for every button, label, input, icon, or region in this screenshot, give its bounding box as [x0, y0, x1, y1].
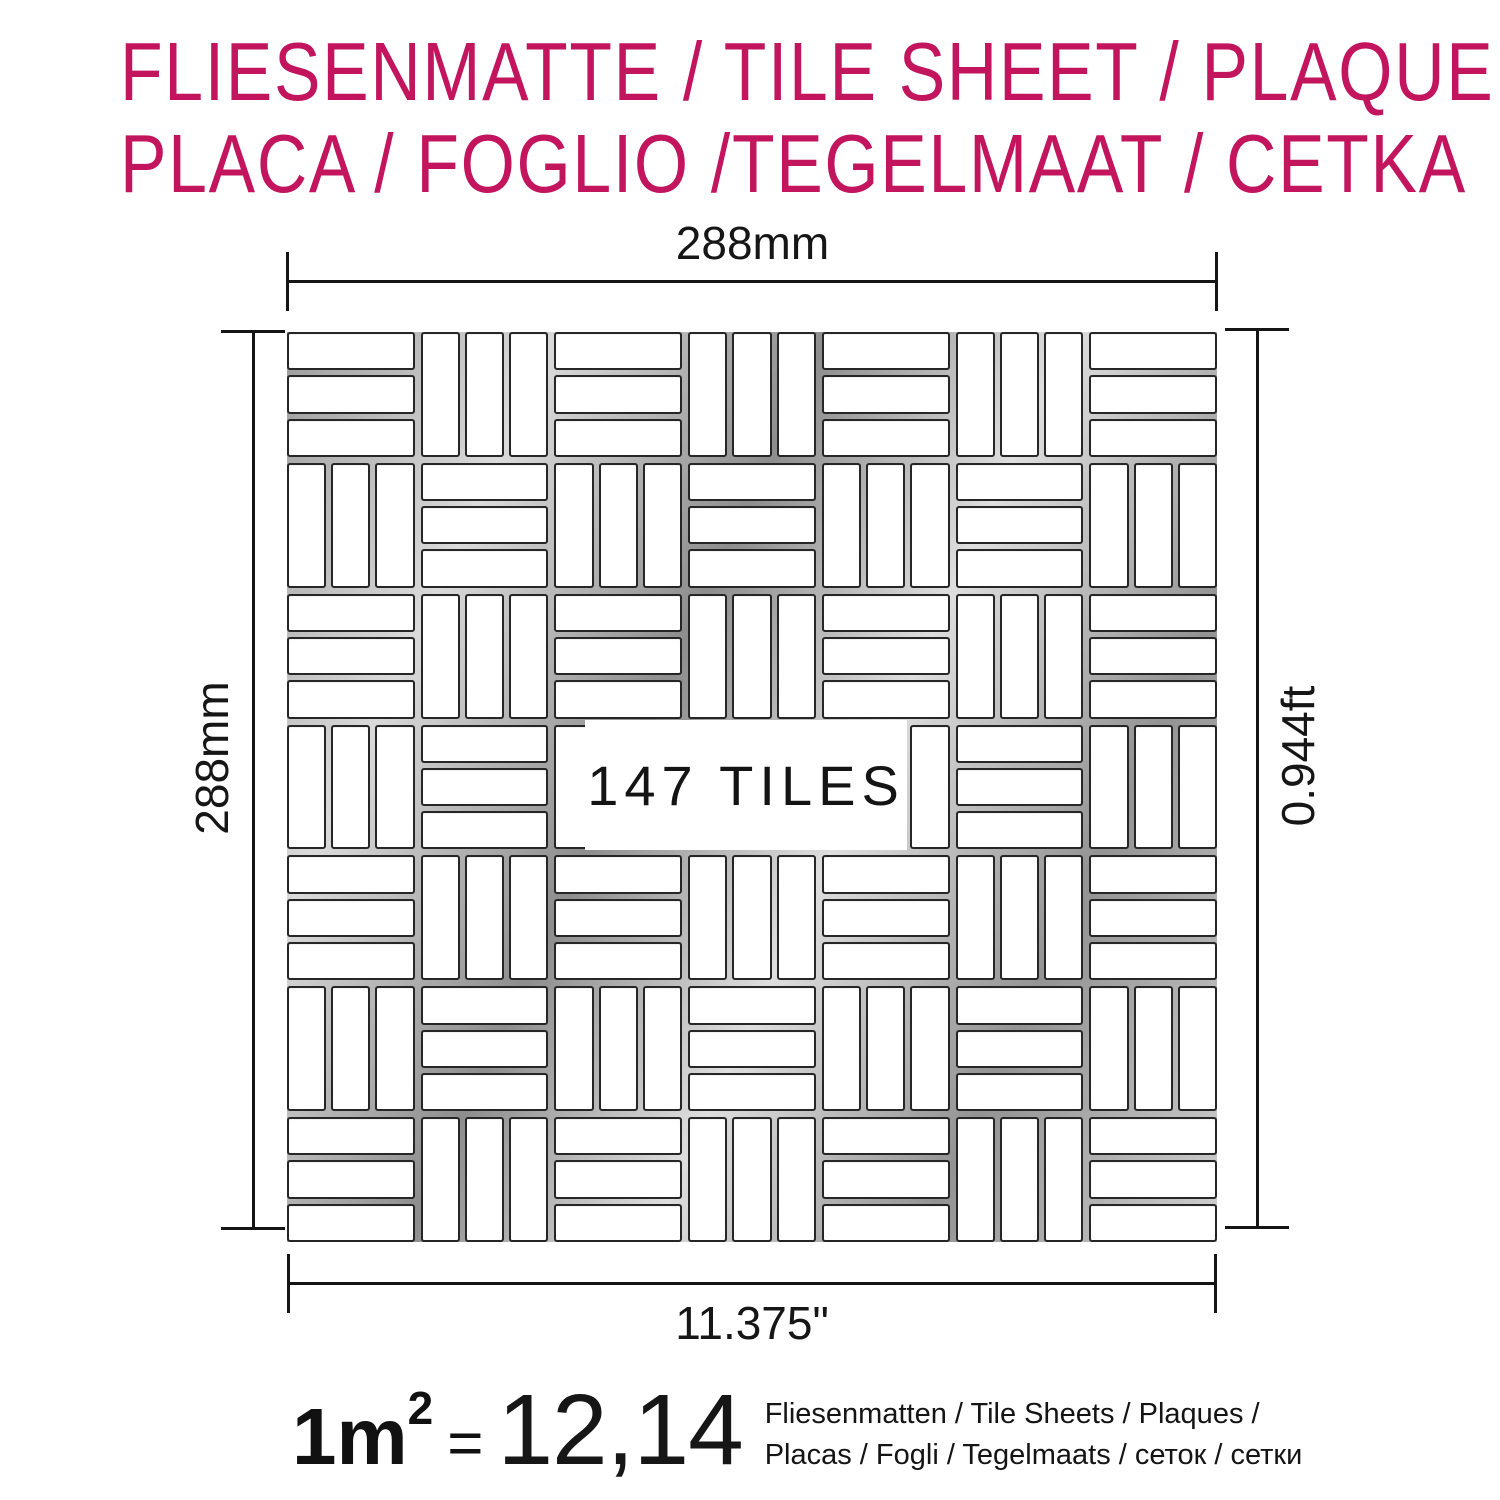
- tile: [777, 1117, 816, 1242]
- tile-block-vertical: [287, 725, 415, 850]
- tile: [1089, 419, 1217, 457]
- tile: [866, 986, 905, 1111]
- dim-bottom-label: 11.375": [288, 1296, 1216, 1350]
- tile: [554, 463, 593, 588]
- tile-block-horizontal: [421, 725, 549, 850]
- tile: [599, 463, 638, 588]
- tile: [910, 725, 949, 850]
- tile: [465, 332, 504, 457]
- tile: [554, 637, 682, 675]
- tile: [688, 986, 816, 1024]
- tile: [1134, 725, 1173, 850]
- tile: [331, 986, 370, 1111]
- equals-sign: =: [433, 1409, 497, 1478]
- tile: [910, 986, 949, 1111]
- dim-top-line: [287, 280, 1218, 283]
- tile: [331, 463, 370, 588]
- tile: [956, 986, 1084, 1024]
- tile: [287, 637, 415, 675]
- tile-block-horizontal: [822, 855, 950, 980]
- tile: [956, 768, 1084, 806]
- dim-top-tick-left: [286, 252, 289, 311]
- tile-block-horizontal: [287, 1117, 415, 1242]
- tile: [554, 594, 682, 632]
- tile-block-vertical: [956, 855, 1084, 980]
- tile: [688, 1030, 816, 1068]
- tile: [1089, 637, 1217, 675]
- tile-block-vertical: [1089, 986, 1217, 1111]
- title-line-2: PLACA / FOGLIO /TEGELMAAT / CETKA: [120, 118, 1380, 210]
- tile-block-horizontal: [554, 855, 682, 980]
- tile: [554, 332, 682, 370]
- tile: [421, 1030, 549, 1068]
- tile: [421, 986, 549, 1024]
- tile: [956, 463, 1084, 501]
- tile-block-vertical: [956, 1117, 1084, 1242]
- tile-block-vertical: [421, 855, 549, 980]
- tile: [822, 463, 861, 588]
- tile: [910, 463, 949, 588]
- tile: [956, 1073, 1084, 1111]
- tile: [822, 594, 950, 632]
- tile-block-horizontal: [421, 463, 549, 588]
- tile: [643, 986, 682, 1111]
- dim-left-tick-bottom: [221, 1227, 285, 1230]
- tile: [287, 855, 415, 893]
- tile: [554, 680, 682, 718]
- tile: [1134, 463, 1173, 588]
- tile: [554, 942, 682, 980]
- tile: [287, 375, 415, 413]
- tile: [1089, 942, 1217, 980]
- quantity-exponent: 2: [408, 1382, 434, 1434]
- tile-block-horizontal: [1089, 1117, 1217, 1242]
- tile: [287, 419, 415, 457]
- coverage-formula: 1m2=12,14Fliesenmatten / Tile Sheets / P…: [292, 1380, 1302, 1480]
- tile: [1089, 594, 1217, 632]
- tile: [1000, 855, 1039, 980]
- tile: [866, 463, 905, 588]
- tile: [822, 942, 950, 980]
- tile: [822, 855, 950, 893]
- tile: [732, 855, 771, 980]
- tile-block-horizontal: [554, 332, 682, 457]
- tile: [331, 725, 370, 850]
- tile: [688, 1117, 727, 1242]
- tile: [822, 1160, 950, 1198]
- tile: [465, 1117, 504, 1242]
- tile: [688, 594, 727, 719]
- tile: [421, 506, 549, 544]
- tile-block-horizontal: [956, 986, 1084, 1111]
- tile: [822, 899, 950, 937]
- tile: [465, 594, 504, 719]
- tile: [509, 594, 548, 719]
- tile: [956, 506, 1084, 544]
- tile: [421, 811, 549, 849]
- tile: [1178, 725, 1217, 850]
- tile: [1000, 332, 1039, 457]
- tile: [287, 1204, 415, 1242]
- tile: [599, 725, 638, 850]
- tile-block-horizontal: [554, 594, 682, 719]
- tile: [421, 855, 460, 980]
- tile-block-horizontal: [688, 463, 816, 588]
- tile-block-vertical: [287, 463, 415, 588]
- tile: [421, 549, 549, 587]
- tile-block-horizontal: [421, 986, 549, 1111]
- tile: [777, 332, 816, 457]
- tile-block-vertical: [956, 332, 1084, 457]
- tile-block-horizontal: [822, 594, 950, 719]
- tile: [822, 332, 950, 370]
- tile: [554, 899, 682, 937]
- tile-block-horizontal: [287, 594, 415, 719]
- tile: [1089, 1204, 1217, 1242]
- tile: [509, 332, 548, 457]
- tile: [1089, 1160, 1217, 1198]
- tile: [287, 942, 415, 980]
- tile-block-vertical: [688, 855, 816, 980]
- tile-block-horizontal: [956, 463, 1084, 588]
- tile: [1134, 986, 1173, 1111]
- tile: [688, 506, 816, 544]
- tile: [554, 855, 682, 893]
- dim-left-line: [252, 331, 255, 1229]
- tile-block-vertical: [421, 1117, 549, 1242]
- tile: [554, 1160, 682, 1198]
- tile: [688, 768, 816, 806]
- tile: [1178, 463, 1217, 588]
- tile: [822, 1117, 950, 1155]
- tile: [643, 725, 682, 850]
- dim-left-tick-top: [221, 330, 285, 333]
- tile-block-horizontal: [1089, 855, 1217, 980]
- tile: [1089, 375, 1217, 413]
- tile: [287, 725, 326, 850]
- tile: [509, 1117, 548, 1242]
- tile: [554, 725, 593, 850]
- tile-block-vertical: [421, 594, 549, 719]
- unit-names-line-1: Fliesenmatten / Tile Sheets / Plaques /: [765, 1394, 1303, 1435]
- tile: [287, 986, 326, 1111]
- tile: [287, 680, 415, 718]
- tile: [688, 549, 816, 587]
- tile: [956, 549, 1084, 587]
- tile: [1000, 1117, 1039, 1242]
- tile: [956, 594, 995, 719]
- tile: [822, 986, 861, 1111]
- tile: [554, 419, 682, 457]
- tile-block-horizontal: [1089, 594, 1217, 719]
- tile: [732, 594, 771, 719]
- dim-right-label: 0.944ft: [1271, 686, 1325, 827]
- unit-names: Fliesenmatten / Tile Sheets / Plaques /P…: [765, 1394, 1303, 1476]
- tile: [1089, 986, 1128, 1111]
- quantity-text: 1m: [292, 1392, 408, 1481]
- tile-block-vertical: [822, 725, 950, 850]
- tile: [1044, 332, 1083, 457]
- tile-block-vertical: [688, 1117, 816, 1242]
- tile: [465, 855, 504, 980]
- tile: [421, 463, 549, 501]
- tile-block-horizontal: [287, 332, 415, 457]
- tile-block-vertical: [822, 463, 950, 588]
- dim-top-tick-right: [1215, 252, 1218, 311]
- tile: [688, 855, 727, 980]
- tile-block-horizontal: [956, 725, 1084, 850]
- tile-block-vertical: [1089, 463, 1217, 588]
- tile: [956, 855, 995, 980]
- tile-block-vertical: [287, 986, 415, 1111]
- tile: [1044, 1117, 1083, 1242]
- tile: [554, 1117, 682, 1155]
- tile: [777, 594, 816, 719]
- tile: [287, 594, 415, 632]
- tile-block-vertical: [822, 986, 950, 1111]
- tile: [956, 332, 995, 457]
- tile: [421, 1073, 549, 1111]
- tile: [1089, 680, 1217, 718]
- tile-block-vertical: [688, 594, 816, 719]
- tile: [956, 1117, 995, 1242]
- dim-right-tick-top: [1225, 328, 1289, 331]
- tile: [1044, 594, 1083, 719]
- tile: [956, 811, 1084, 849]
- tile-block-vertical: [956, 594, 1084, 719]
- tile: [375, 725, 414, 850]
- tile: [956, 1030, 1084, 1068]
- tile: [1089, 1117, 1217, 1155]
- tile-block-horizontal: [554, 1117, 682, 1242]
- tile: [421, 332, 460, 457]
- tile: [1178, 986, 1217, 1111]
- tile: [1089, 899, 1217, 937]
- dim-right-tick-bottom: [1225, 1226, 1289, 1229]
- tile-block-vertical: [421, 332, 549, 457]
- tile: [688, 463, 816, 501]
- tile-block-horizontal: [822, 1117, 950, 1242]
- tile-block-horizontal: [688, 725, 816, 850]
- tile: [509, 855, 548, 980]
- tile: [1089, 855, 1217, 893]
- tile-block-vertical: [688, 332, 816, 457]
- dim-bottom-line: [288, 1282, 1216, 1285]
- dim-left-label: 288mm: [185, 681, 239, 834]
- tile: [1044, 855, 1083, 980]
- tile: [287, 899, 415, 937]
- tile: [688, 332, 727, 457]
- tile: [822, 1204, 950, 1242]
- title-line-1: FLIESENMATTE / TILE SHEET / PLAQUE: [120, 26, 1380, 118]
- tile: [287, 463, 326, 588]
- tile: [1000, 594, 1039, 719]
- tile: [287, 1117, 415, 1155]
- tile: [375, 986, 414, 1111]
- tile: [1089, 463, 1128, 588]
- tile: [822, 419, 950, 457]
- unit-names-line-2: Placas / Fogli / Tegelmaats / сеток / се…: [765, 1435, 1303, 1476]
- tile: [554, 986, 593, 1111]
- tile: [1089, 332, 1217, 370]
- tile: [688, 811, 816, 849]
- tile: [688, 725, 816, 763]
- tile-block-vertical: [554, 463, 682, 588]
- sheets-per-sqm-value: 12,14: [497, 1374, 742, 1486]
- dim-right-line: [1256, 330, 1259, 1228]
- tile: [956, 725, 1084, 763]
- tile: [287, 1160, 415, 1198]
- tile-block-horizontal: [688, 986, 816, 1111]
- tile: [822, 680, 950, 718]
- tile: [866, 725, 905, 850]
- tile: [1089, 725, 1128, 850]
- tile: [777, 855, 816, 980]
- tile: [822, 375, 950, 413]
- tile: [375, 463, 414, 588]
- dim-top-label: 288mm: [287, 216, 1218, 270]
- tile: [421, 594, 460, 719]
- tile: [822, 725, 861, 850]
- tile: [732, 1117, 771, 1242]
- tile: [599, 986, 638, 1111]
- page-title: FLIESENMATTE / TILE SHEET / PLAQUE PLACA…: [0, 26, 1500, 210]
- tile: [421, 725, 549, 763]
- tile: [421, 1117, 460, 1242]
- tile-block-horizontal: [287, 855, 415, 980]
- tile-sheet: [287, 332, 1217, 1242]
- tile-block-horizontal: [1089, 332, 1217, 457]
- product-diagram: FLIESENMATTE / TILE SHEET / PLAQUE PLACA…: [0, 0, 1500, 1500]
- tile-block-vertical: [1089, 725, 1217, 850]
- tile-block-vertical: [554, 986, 682, 1111]
- tile: [688, 1073, 816, 1111]
- tile: [554, 1204, 682, 1242]
- tile: [643, 463, 682, 588]
- tile: [287, 332, 415, 370]
- tile-block-vertical: [554, 725, 682, 850]
- tile: [732, 332, 771, 457]
- tile: [822, 637, 950, 675]
- tile: [421, 768, 549, 806]
- tile: [554, 375, 682, 413]
- tile-block-horizontal: [822, 332, 950, 457]
